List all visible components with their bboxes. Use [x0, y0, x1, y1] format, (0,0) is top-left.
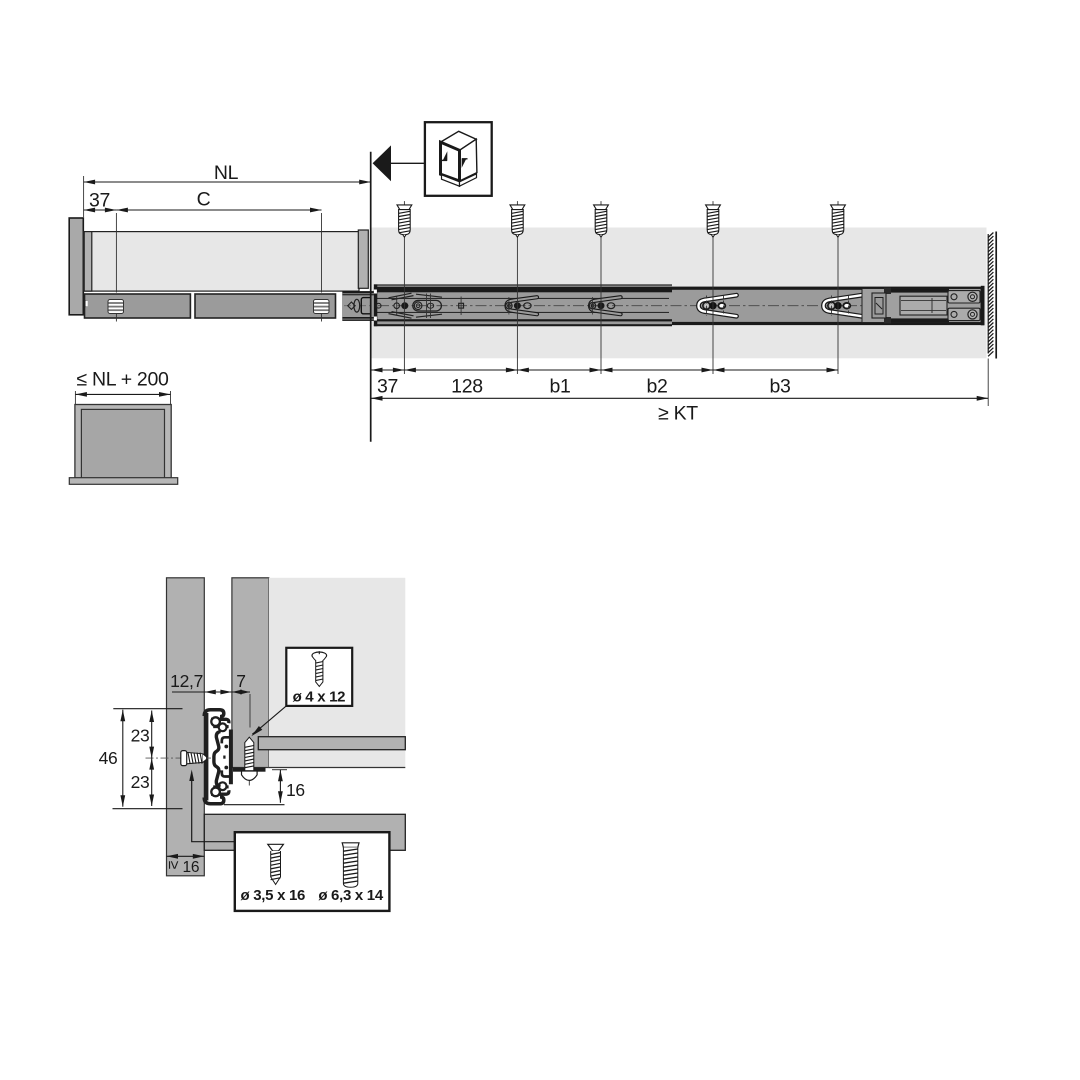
svg-text:ø 6,3 x 14: ø 6,3 x 14 [318, 887, 384, 904]
svg-text:≤ NL + 200: ≤ NL + 200 [76, 369, 169, 391]
svg-text:16: 16 [286, 780, 305, 800]
svg-text:b2: b2 [646, 376, 667, 398]
svg-text:ø 3,5 x 16: ø 3,5 x 16 [241, 887, 306, 904]
svg-text:b1: b1 [549, 376, 570, 398]
svg-text:C: C [197, 189, 211, 211]
svg-text:≥ KT: ≥ KT [658, 403, 698, 425]
svg-text:NL: NL [214, 162, 239, 184]
svg-text:7: 7 [236, 671, 245, 691]
svg-text:23: 23 [131, 772, 150, 792]
svg-text:ø 4 x 12: ø 4 x 12 [293, 689, 346, 706]
svg-text:≥: ≥ [165, 861, 182, 870]
svg-text:23: 23 [131, 725, 150, 745]
svg-text:16: 16 [183, 859, 200, 876]
svg-text:12,7: 12,7 [170, 671, 203, 691]
svg-text:b3: b3 [769, 376, 790, 398]
svg-text:128: 128 [451, 376, 483, 398]
svg-text:37: 37 [89, 190, 110, 212]
svg-text:37: 37 [377, 376, 398, 398]
svg-text:46: 46 [99, 748, 118, 768]
